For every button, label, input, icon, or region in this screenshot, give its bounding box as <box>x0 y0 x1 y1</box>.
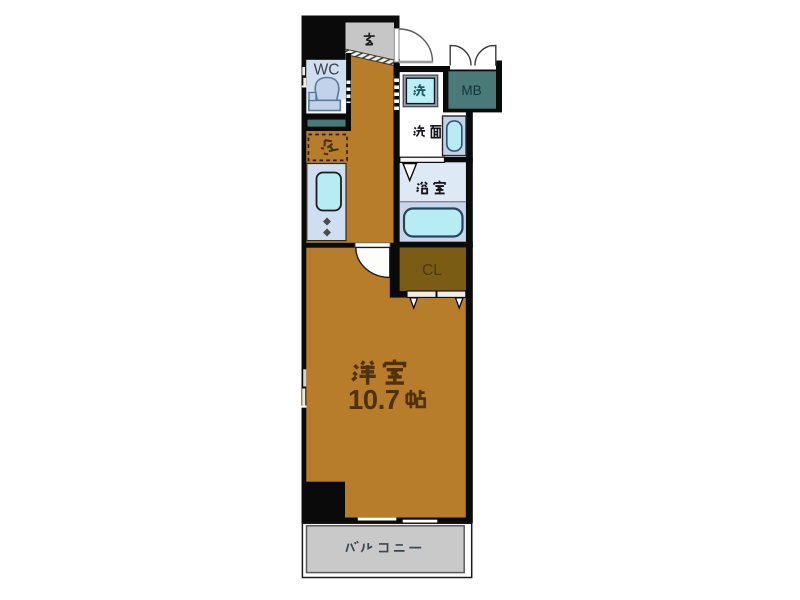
svg-text:CL: CL <box>422 262 442 279</box>
svg-text:10.7: 10.7 <box>348 384 400 415</box>
svg-text:WC: WC <box>314 62 340 79</box>
svg-text:MB: MB <box>461 83 481 98</box>
